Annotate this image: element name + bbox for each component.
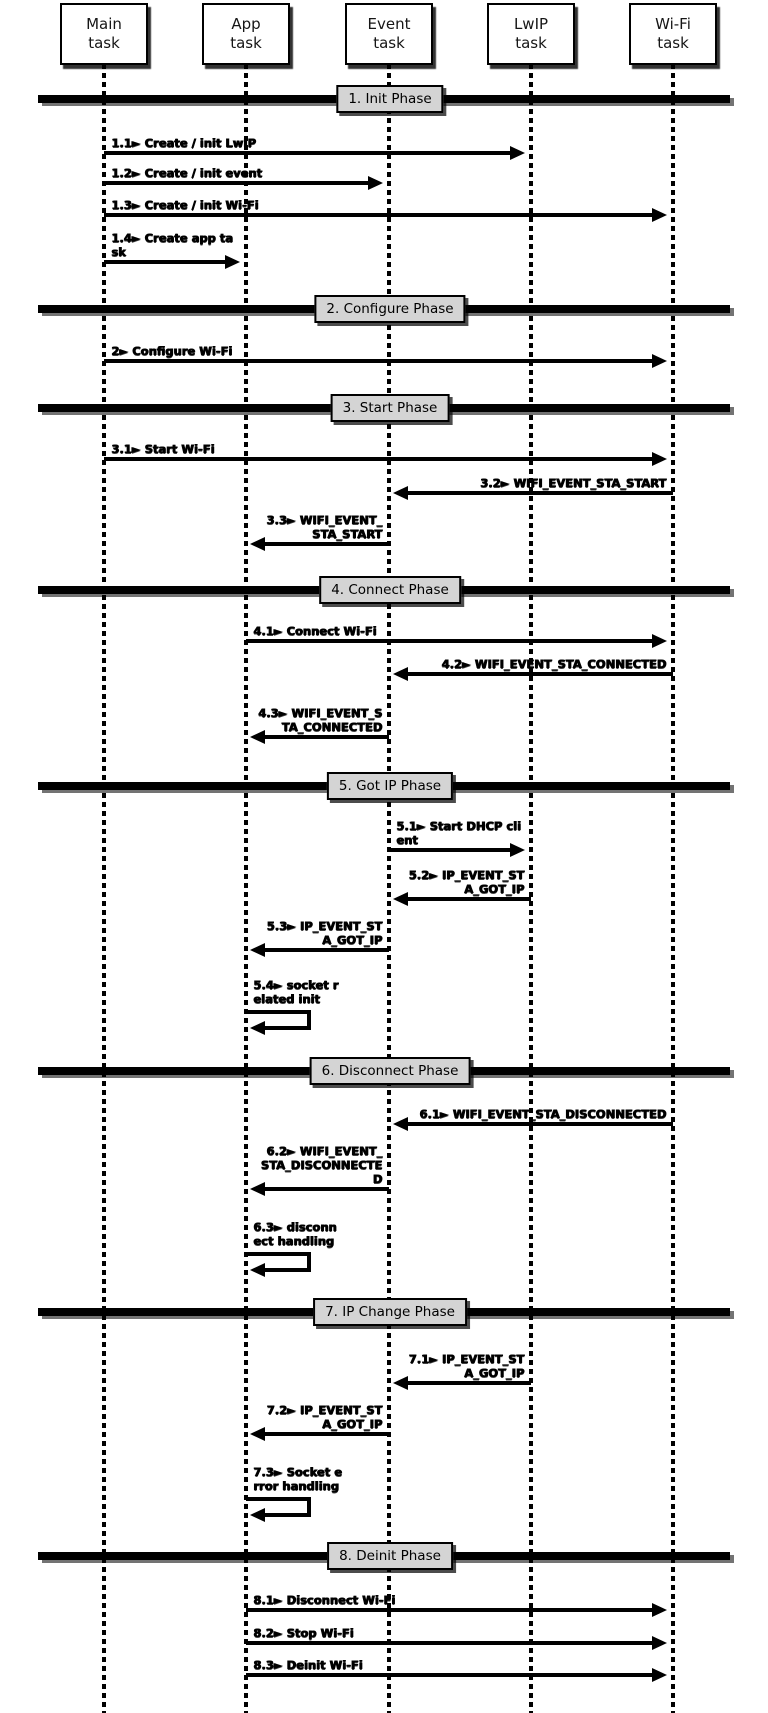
message-line (265, 1432, 389, 1436)
actor-label-line: Event (368, 15, 411, 34)
message-label: 7.2► IP_EVENT_STA_GOT_IP (266, 1403, 382, 1431)
self-message-bottom-line (265, 1513, 311, 1517)
message-label: 6.2► WIFI_EVENT_STA_DISCONNECTED (261, 1144, 382, 1186)
phase-label: 2. Configure Phase (314, 295, 465, 323)
phase-label: 7. IP Change Phase (313, 1298, 467, 1326)
message-line (389, 848, 512, 852)
actor-label-line: task (88, 34, 120, 53)
message-line (408, 491, 673, 495)
message-label: 7.3► Socket error handling (253, 1465, 342, 1493)
message-label-line: ent (396, 833, 521, 847)
message-line (246, 639, 654, 643)
actor-label-line: task (515, 34, 547, 53)
arrowhead-left (393, 486, 408, 500)
message-label-line: 7.2► IP_EVENT_ST (266, 1403, 382, 1417)
arrowhead-left (393, 1376, 408, 1390)
message-label-line: sk (111, 245, 233, 259)
phase-label: 5. Got IP Phase (327, 772, 453, 800)
message-label-line: 6.1► WIFI_EVENT_STA_DISCONNECTED (419, 1107, 666, 1121)
self-message-top-line (246, 1010, 311, 1014)
message-label: 8.2► Stop Wi-Fi (253, 1626, 353, 1640)
actor-label-line: Wi-Fi (655, 15, 691, 34)
message-line (104, 260, 227, 264)
message-label: 2► Configure Wi-Fi (111, 344, 232, 358)
arrowhead-right (652, 1636, 667, 1650)
message-label-line: 6.3► disconn (253, 1220, 336, 1234)
arrowhead-right (652, 634, 667, 648)
message-label-line: rror handling (253, 1479, 342, 1493)
message-label: 4.2► WIFI_EVENT_STA_CONNECTED (441, 657, 666, 671)
message-label: 8.3► Deinit Wi-Fi (253, 1658, 362, 1672)
message-label-line: 3.3► WIFI_EVENT_ (266, 513, 382, 527)
message-label-line: ect handling (253, 1234, 336, 1248)
message-line (104, 457, 654, 461)
message-line (265, 542, 389, 546)
arrowhead-left (393, 1117, 408, 1131)
message-label: 3.1► Start Wi-Fi (111, 442, 214, 456)
arrowhead-left (250, 537, 265, 551)
message-label: 5.3► IP_EVENT_STA_GOT_IP (266, 919, 382, 947)
arrowhead-right (652, 208, 667, 222)
message-label-line: 1.2► Create / init event (111, 166, 262, 180)
self-message-top-line (246, 1252, 311, 1256)
message-label: 5.2► IP_EVENT_STA_GOT_IP (408, 868, 524, 896)
arrowhead-left (393, 667, 408, 681)
actor-box-lwip: LwIPtask (487, 3, 575, 65)
phase-label: 4. Connect Phase (319, 576, 461, 604)
phase-label: 8. Deinit Phase (327, 1542, 453, 1570)
message-line (408, 897, 531, 901)
sequence-diagram: MaintaskApptaskEventtaskLwIPtaskWi-Fitas… (0, 0, 768, 1713)
arrowhead-right (368, 176, 383, 190)
message-line (246, 1608, 654, 1612)
message-label: 6.3► disconnect handling (253, 1220, 336, 1248)
message-line (408, 1122, 673, 1126)
message-label-line: 1.3► Create / init Wi-Fi (111, 198, 258, 212)
arrowhead-left (250, 1263, 265, 1277)
phase-label: 1. Init Phase (336, 85, 443, 113)
message-label-line: A_GOT_IP (266, 933, 382, 947)
phase-label: 6. Disconnect Phase (310, 1057, 471, 1085)
message-label-line: 7.3► Socket e (253, 1465, 342, 1479)
message-label-line: 5.1► Start DHCP cli (396, 819, 521, 833)
arrowhead-right (652, 1603, 667, 1617)
message-label-line: 5.2► IP_EVENT_ST (408, 868, 524, 882)
self-message-bottom-line (265, 1268, 311, 1272)
message-label: 3.3► WIFI_EVENT_STA_START (266, 513, 382, 541)
message-label: 1.4► Create app task (111, 231, 233, 259)
message-line (265, 735, 389, 739)
message-line (104, 213, 654, 217)
message-label: 3.2► WIFI_EVENT_STA_START (480, 476, 666, 490)
phase-label: 3. Start Phase (331, 394, 450, 422)
message-label-line: 3.2► WIFI_EVENT_STA_START (480, 476, 666, 490)
arrowhead-left (250, 943, 265, 957)
message-label: 1.3► Create / init Wi-Fi (111, 198, 258, 212)
self-message-top-line (246, 1497, 311, 1501)
actor-label-line: task (657, 34, 689, 53)
arrowhead-right (652, 452, 667, 466)
message-line (104, 359, 654, 363)
arrowhead-right (652, 1668, 667, 1682)
message-label-line: D (261, 1172, 382, 1186)
self-message-bottom-line (265, 1026, 311, 1030)
message-label-line: A_GOT_IP (266, 1417, 382, 1431)
message-line (408, 672, 673, 676)
arrowhead-left (250, 1021, 265, 1035)
message-label-line: STA_DISCONNECTE (261, 1158, 382, 1172)
message-label-line: A_GOT_IP (408, 882, 524, 896)
message-label: 6.1► WIFI_EVENT_STA_DISCONNECTED (419, 1107, 666, 1121)
actor-label-line: LwIP (514, 15, 548, 34)
message-line (246, 1673, 654, 1677)
arrowhead-right (652, 354, 667, 368)
arrowhead-left (250, 1508, 265, 1522)
message-label: 5.1► Start DHCP client (396, 819, 521, 847)
message-line (265, 948, 389, 952)
message-label: 8.1► Disconnect Wi-Fi (253, 1593, 395, 1607)
message-label: 7.1► IP_EVENT_STA_GOT_IP (408, 1352, 524, 1380)
message-label-line: 3.1► Start Wi-Fi (111, 442, 214, 456)
message-label-line: 8.1► Disconnect Wi-Fi (253, 1593, 395, 1607)
actor-label-line: App (231, 15, 260, 34)
arrowhead-left (393, 892, 408, 906)
message-label-line: 5.3► IP_EVENT_ST (266, 919, 382, 933)
message-line (246, 1641, 654, 1645)
message-label: 4.3► WIFI_EVENT_STA_CONNECTED (258, 706, 382, 734)
message-label-line: A_GOT_IP (408, 1366, 524, 1380)
message-line (265, 1187, 389, 1191)
actor-label-line: task (373, 34, 405, 53)
message-label-line: 1.1► Create / init LwIP (111, 136, 256, 150)
actor-box-event: Eventtask (345, 3, 433, 65)
message-label-line: 2► Configure Wi-Fi (111, 344, 232, 358)
arrowhead-right (510, 146, 525, 160)
message-label-line: TA_CONNECTED (258, 720, 382, 734)
actor-label-line: Main (86, 15, 122, 34)
actor-box-main: Maintask (60, 3, 148, 65)
message-label-line: 4.1► Connect Wi-Fi (253, 624, 376, 638)
message-line (104, 181, 370, 185)
message-label-line: 4.3► WIFI_EVENT_S (258, 706, 382, 720)
message-label: 1.1► Create / init LwIP (111, 136, 256, 150)
message-label-line: 8.2► Stop Wi-Fi (253, 1626, 353, 1640)
message-label-line: 7.1► IP_EVENT_ST (408, 1352, 524, 1366)
message-label-line: elated init (253, 992, 338, 1006)
message-label: 1.2► Create / init event (111, 166, 262, 180)
actor-label-line: task (230, 34, 262, 53)
message-label-line: 6.2► WIFI_EVENT_ (261, 1144, 382, 1158)
message-label-line: STA_START (266, 527, 382, 541)
message-line (408, 1381, 531, 1385)
actor-box-app: Apptask (202, 3, 290, 65)
message-label-line: 4.2► WIFI_EVENT_STA_CONNECTED (441, 657, 666, 671)
arrowhead-left (250, 1427, 265, 1441)
message-line (104, 151, 512, 155)
message-label-line: 8.3► Deinit Wi-Fi (253, 1658, 362, 1672)
message-label: 5.4► socket related init (253, 978, 338, 1006)
message-label-line: 1.4► Create app ta (111, 231, 233, 245)
message-label-line: 5.4► socket r (253, 978, 338, 992)
message-label: 4.1► Connect Wi-Fi (253, 624, 376, 638)
actor-box-wifi: Wi-Fitask (629, 3, 717, 65)
